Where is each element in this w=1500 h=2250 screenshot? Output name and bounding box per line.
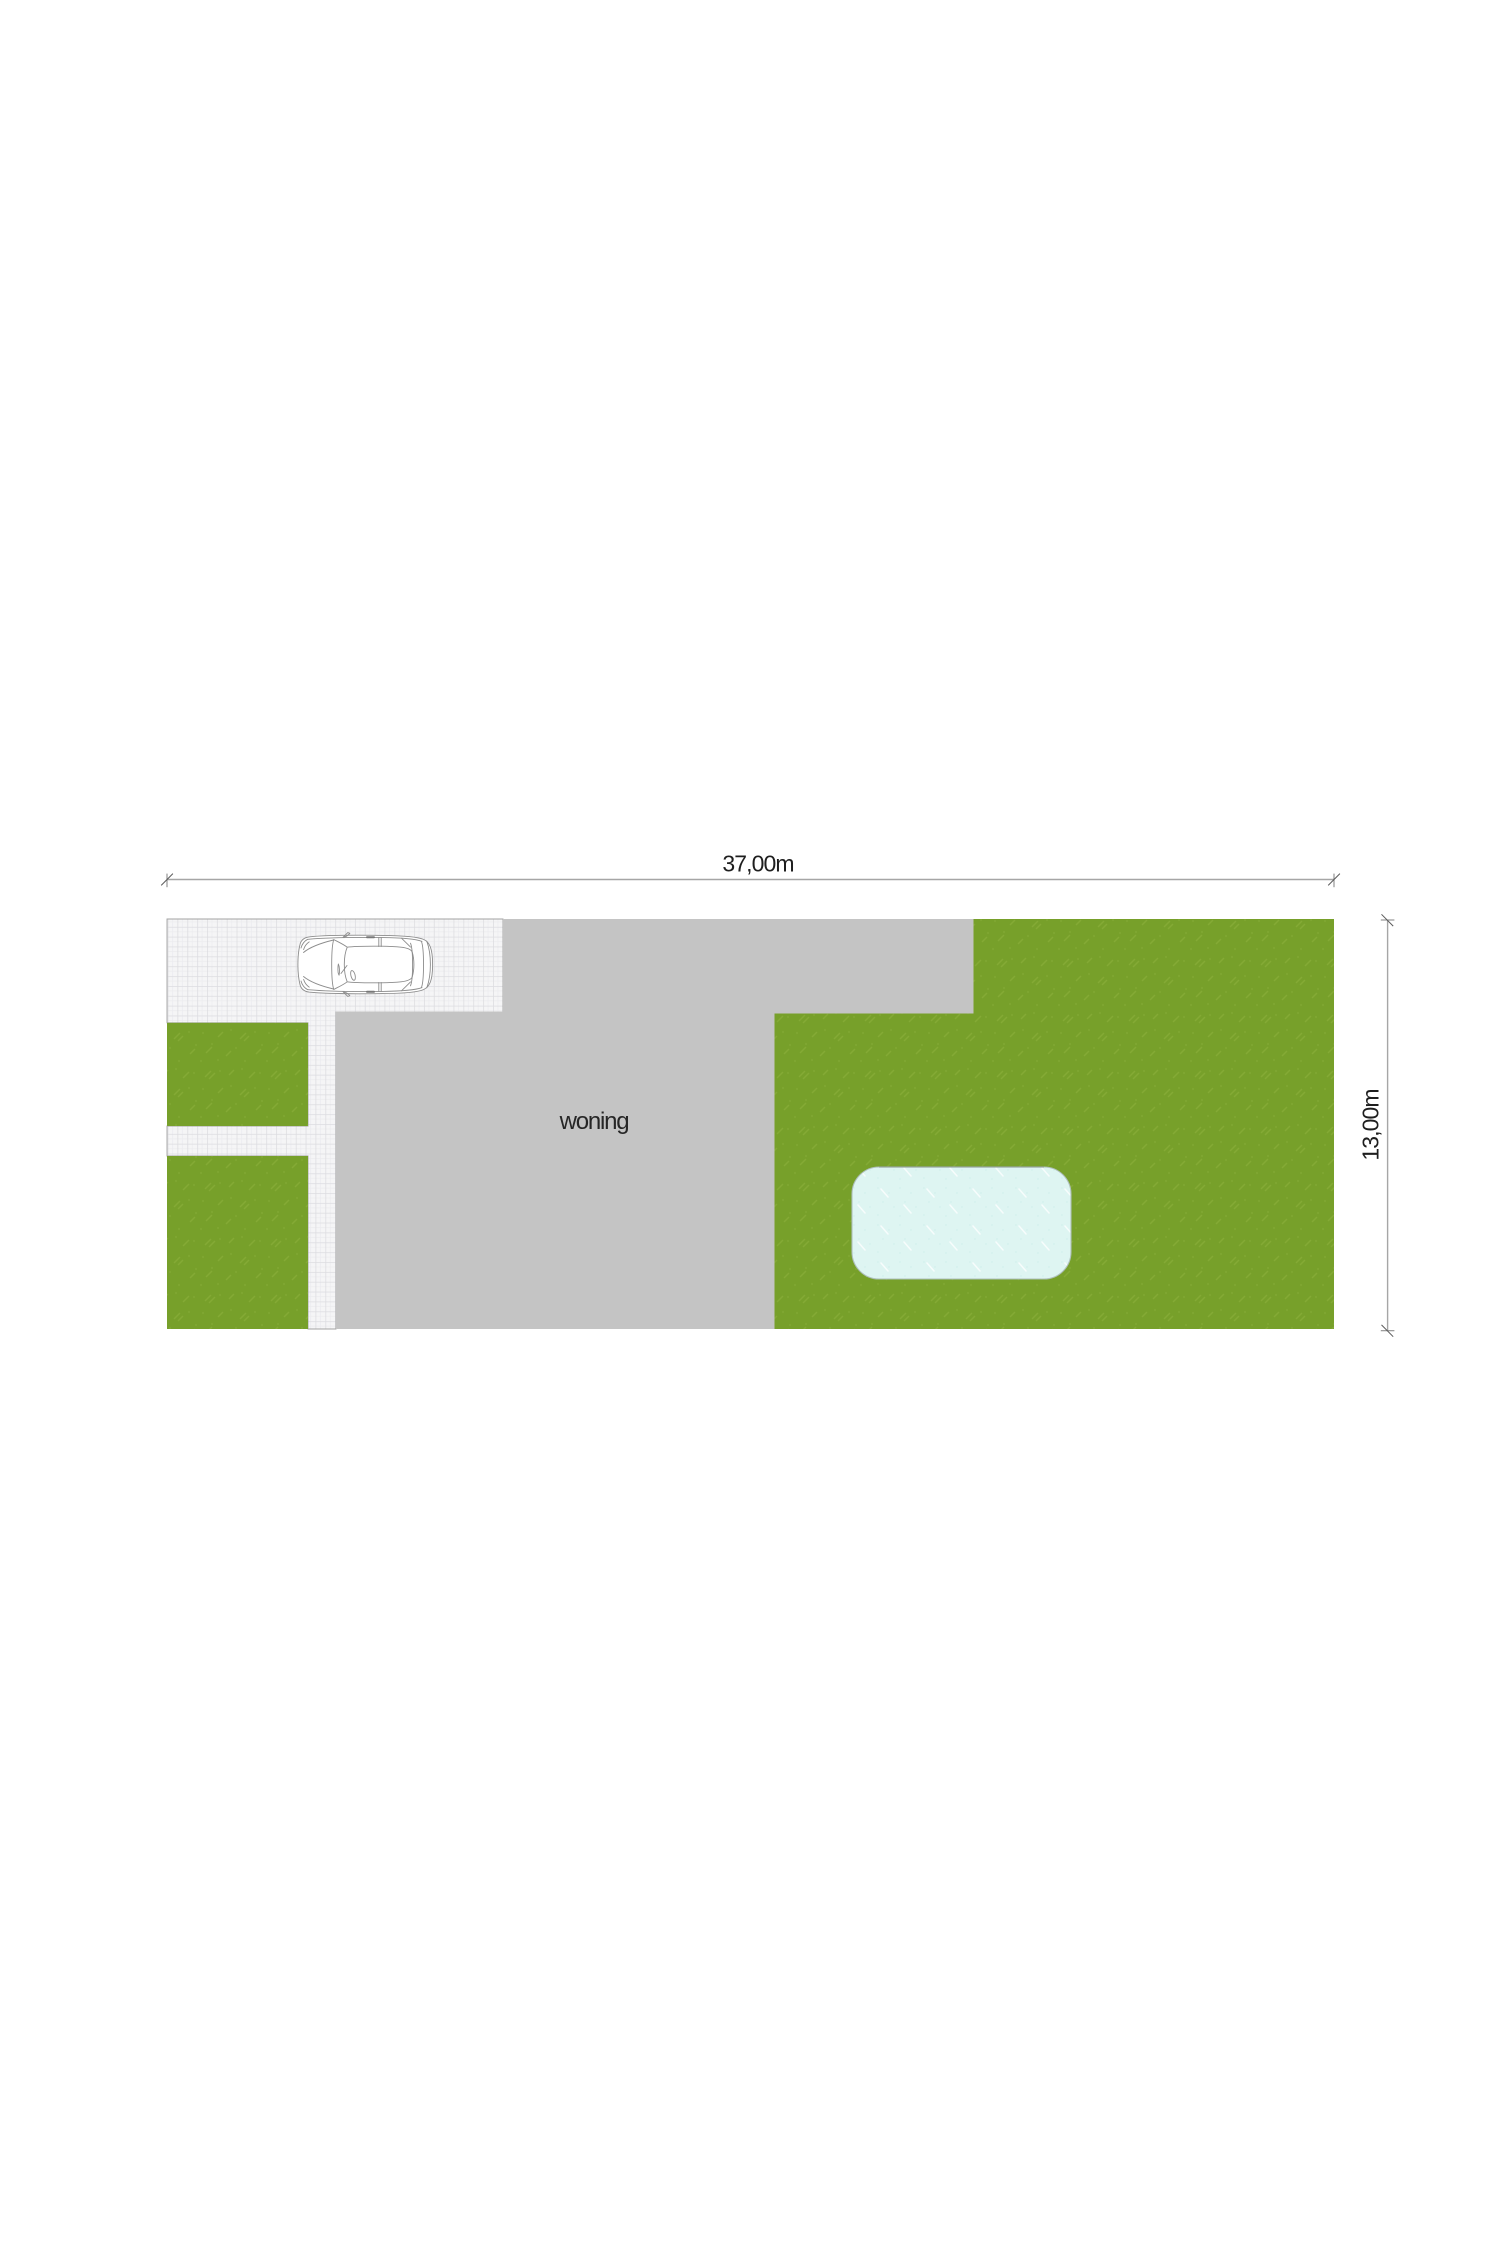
svg-text:37,00m: 37,00m: [722, 850, 793, 876]
svg-text:13,00m: 13,00m: [1358, 1089, 1384, 1160]
svg-text:woning: woning: [559, 1108, 629, 1135]
